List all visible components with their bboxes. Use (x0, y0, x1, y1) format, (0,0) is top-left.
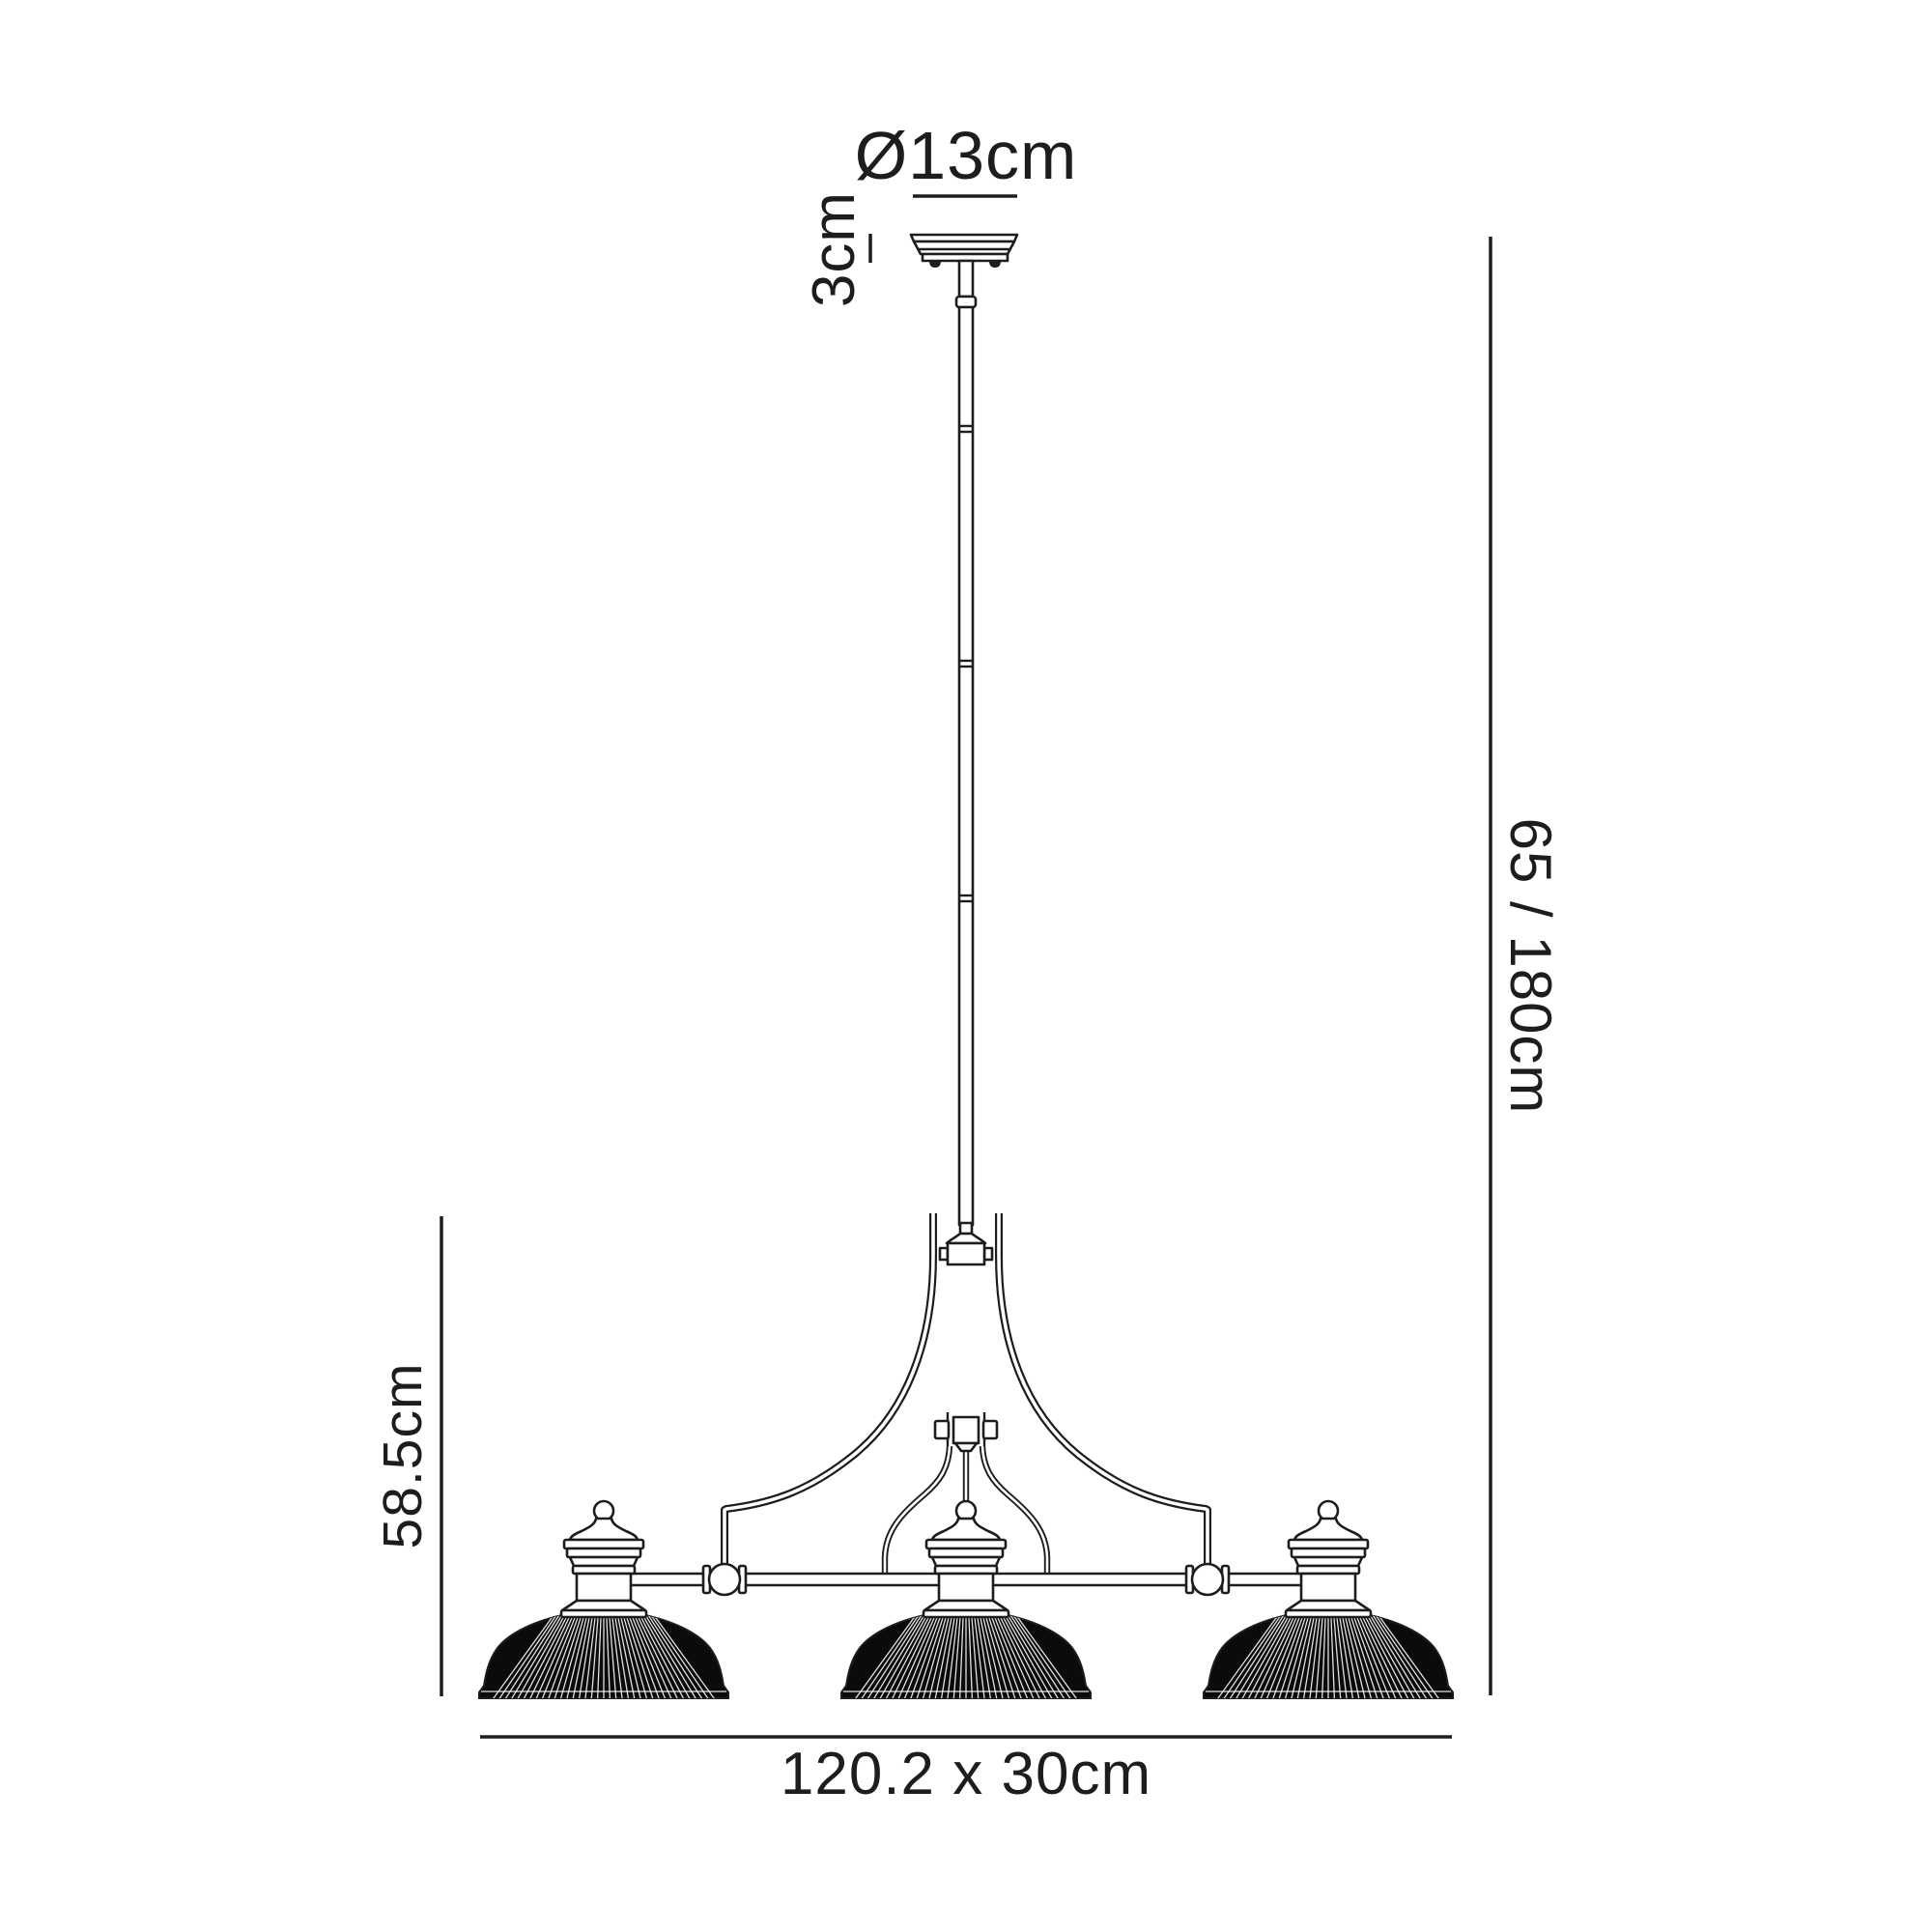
canopy-body (914, 241, 1014, 254)
adjuster-wing (935, 1421, 949, 1438)
connector-collar (960, 1223, 972, 1234)
connector-block (948, 1243, 984, 1264)
canopy-diameter-label: Ø13cm (855, 118, 1078, 193)
rod-main (959, 307, 973, 1225)
body-height-label: 58.5cm (372, 1363, 434, 1549)
rod-stem (959, 261, 973, 297)
ball-joint-right (1192, 1564, 1223, 1595)
overall-size-label: 120.2 x 30cm (781, 1741, 1151, 1807)
canopy-height-label: 3cm (801, 191, 867, 307)
suspension-rod (956, 261, 976, 1225)
pendant-light-dimension-diagram: Ø13cm 3cm 65 / 180cm 58.5cm 120.2 x 30cm (0, 0, 1932, 1932)
adjuster-block (953, 1417, 979, 1443)
adjuster-wing (983, 1421, 997, 1438)
drop-range-label: 65 / 180cm (1498, 818, 1563, 1115)
dimension-diagram-page: Ø13cm 3cm 65 / 180cm 58.5cm 120.2 x 30cm (0, 0, 1932, 1932)
rod-collar (956, 297, 976, 307)
ball-joint-left (709, 1564, 740, 1595)
